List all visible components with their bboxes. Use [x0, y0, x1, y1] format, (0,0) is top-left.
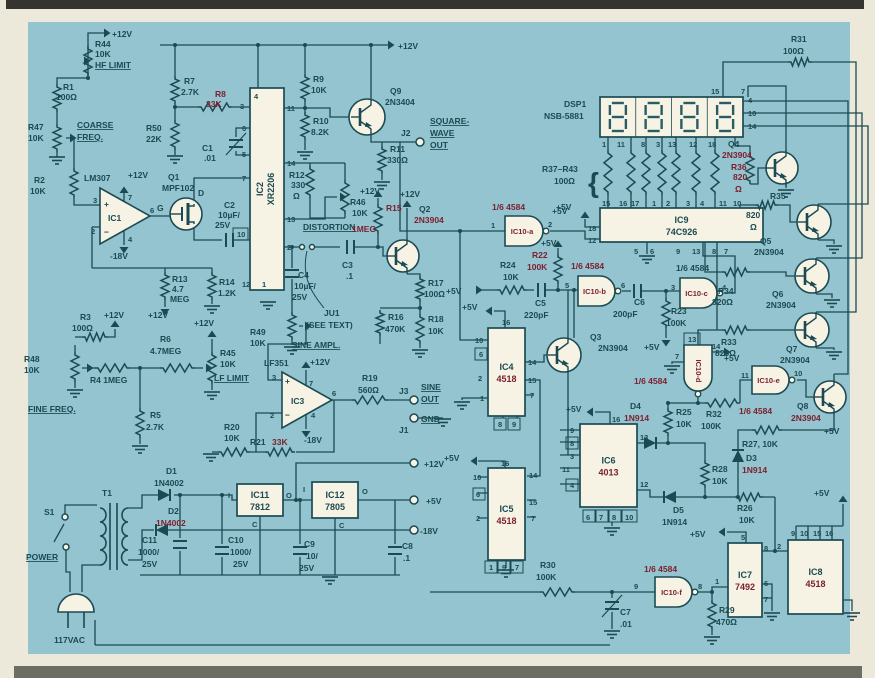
component-label: 6: [650, 247, 654, 256]
component-label: 820Ω: [712, 297, 733, 307]
component-label: R3: [80, 312, 91, 322]
junction-dot: [178, 493, 182, 497]
junction-dot: [138, 366, 142, 370]
ic-part-number: 4013: [598, 468, 618, 478]
junction-dot: [294, 498, 298, 502]
component-label: 10K: [352, 208, 368, 218]
component-label: 12: [242, 280, 250, 289]
component-label: R37–R43: [542, 164, 578, 174]
component-label: +5V: [644, 342, 660, 352]
component-label: 2: [666, 199, 670, 208]
component-label: 8: [612, 513, 616, 522]
ic-ref: IC11: [251, 490, 270, 500]
component-label: 100Ω: [554, 176, 575, 186]
component-label: 7: [599, 513, 603, 522]
component-label: 8.2K: [311, 127, 330, 137]
component-label: 100K: [536, 572, 557, 582]
component-label: R23: [671, 306, 687, 316]
component-label: 13: [692, 247, 700, 256]
component-label: C5: [535, 298, 546, 308]
component-label: 10K: [220, 359, 236, 369]
component-label: 9: [502, 563, 506, 572]
component-label: FINE FREQ.: [28, 404, 76, 414]
component-label: R26: [737, 503, 753, 513]
component-label: 1.2K: [218, 288, 237, 298]
component-label: DISTORTION: [303, 222, 355, 232]
component-label: WAVE: [430, 128, 455, 138]
component-label: +12V: [194, 318, 214, 328]
component-label: .01: [620, 619, 632, 629]
component-label: SINE: [421, 382, 441, 392]
component-label: POWER: [26, 552, 58, 562]
component-label: IC1: [108, 213, 122, 223]
component-label: R20: [224, 422, 240, 432]
component-label: 1MEG: [352, 224, 376, 234]
component-label: R45: [220, 348, 236, 358]
component-label: -18V: [110, 251, 128, 261]
component-label: Q3: [590, 332, 602, 342]
component-label: +12V: [128, 170, 148, 180]
component-label: C9: [304, 539, 315, 549]
component-label: D3: [746, 453, 757, 463]
component-label: 33K: [206, 99, 222, 109]
component-label: 11: [287, 104, 295, 113]
component-label: −: [104, 227, 109, 237]
component-label: R50: [146, 123, 162, 133]
component-label: R18: [428, 314, 444, 324]
junction-dot: [303, 43, 307, 47]
npn-transistor: [795, 258, 829, 294]
component-label: R35: [770, 191, 786, 201]
component-label: OUT: [421, 394, 440, 404]
component-label: R5: [150, 410, 161, 420]
component-label: 10µF/: [218, 210, 241, 220]
component-label: 15: [528, 376, 536, 385]
component-label: 3: [93, 196, 97, 205]
component-label: 330Ω: [387, 155, 408, 165]
npn-transistor: [795, 312, 829, 348]
component-label: D4: [630, 401, 641, 411]
junction-dot: [666, 441, 670, 445]
component-label: Ω: [750, 222, 757, 232]
component-label: Q1: [168, 172, 180, 182]
seven-segment-display: [600, 97, 743, 137]
component-label: C2: [224, 200, 235, 210]
component-label: R4 1MEG: [90, 375, 128, 385]
component-label: 820: [746, 210, 760, 220]
component-label: 3: [656, 140, 660, 149]
junction-dot: [556, 288, 560, 292]
component-label: R11: [390, 144, 405, 154]
component-label: 100Ω: [72, 323, 93, 333]
component-label: 7: [675, 352, 679, 361]
component-label: Q6: [772, 289, 784, 299]
component-label: +5V: [444, 453, 460, 463]
component-label: R9: [313, 74, 324, 84]
component-label: Q9: [390, 86, 402, 96]
component-label: 3: [671, 283, 675, 292]
component-label: 1/6 4584: [644, 564, 677, 574]
component-label: D: [198, 188, 204, 198]
junction-dot: [710, 590, 714, 594]
ic-part-number: 4518: [805, 579, 825, 589]
ic-ref: IC6: [601, 456, 615, 466]
component-label: 2: [287, 243, 291, 252]
scan-bottom-bar: [14, 666, 862, 678]
component-label: 1/6 4584: [676, 263, 709, 273]
component-label: O: [286, 491, 292, 500]
component-label: +5V: [690, 529, 706, 539]
component-label: 10: [473, 473, 481, 482]
component-label: +12V: [112, 29, 132, 39]
component-label: 7: [531, 514, 535, 523]
junction-dot: [696, 401, 700, 405]
component-label: +5V: [462, 302, 478, 312]
component-label: 1: [480, 394, 484, 403]
component-label: T1: [102, 488, 112, 498]
ic-part-number: 7492: [735, 582, 755, 592]
component-label: LF351: [264, 358, 289, 368]
gate-ref: IC10-f: [661, 588, 682, 597]
component-label: 100K: [701, 421, 722, 431]
component-label: 10: [733, 199, 741, 208]
component-label: 10K: [503, 272, 519, 282]
component-label: R24: [500, 260, 516, 270]
component-label: 2: [478, 374, 482, 383]
component-label: 1: [491, 221, 495, 230]
component-label: 2N3404: [385, 97, 415, 107]
component-label: 2N3904: [780, 355, 810, 365]
component-label: MEG: [170, 294, 190, 304]
component-label: 14: [528, 358, 537, 367]
junction-dot: [369, 43, 373, 47]
component-label: +5V: [552, 206, 568, 216]
component-label: 12: [640, 480, 648, 489]
ic-box: [312, 482, 358, 518]
component-label: 330: [291, 180, 305, 190]
component-label: -18V: [420, 526, 438, 536]
junction-dot: [666, 401, 670, 405]
schematic-canvas: IC2XR2206IC974C926IC117812IC127805IC4451…: [0, 0, 875, 678]
component-label: Q5: [760, 236, 772, 246]
component-label: 11: [741, 371, 749, 380]
component-label: 5: [242, 150, 246, 159]
component-label: +12V: [424, 459, 444, 469]
terminal-circle: [310, 245, 315, 250]
component-label: C7: [620, 607, 631, 617]
component-label: J3: [399, 386, 409, 396]
component-label: 18: [708, 140, 716, 149]
component-label: .1: [346, 271, 353, 281]
terminal-circle: [410, 396, 418, 404]
component-label: C: [252, 520, 258, 529]
junction-dot: [376, 245, 380, 249]
component-label: 5: [741, 533, 745, 542]
component-label: 1/6 4584: [492, 202, 525, 212]
component-label: 7: [309, 379, 313, 388]
component-label: 13: [688, 335, 696, 344]
component-label: R48: [24, 354, 40, 364]
component-label: 25V: [215, 220, 230, 230]
component-label: +5V: [541, 238, 557, 248]
component-label: FREQ.: [77, 132, 103, 142]
component-label: 1: [652, 199, 656, 208]
ic-part-number: 74C926: [666, 227, 698, 237]
gate-output-bubble: [543, 228, 549, 234]
component-label: 1N914: [662, 517, 687, 527]
scanned-schematic-page: IC2XR2206IC974C926IC117812IC127805IC4451…: [0, 0, 875, 678]
junction-dot: [458, 229, 462, 233]
component-label: 25V: [292, 292, 307, 302]
component-label: +12V: [148, 310, 168, 320]
component-label: 1N914: [742, 465, 767, 475]
component-label: R14: [219, 277, 235, 287]
terminal-circle: [416, 138, 424, 146]
jfet-symbol: [170, 198, 202, 230]
component-label: Q4: [728, 139, 740, 149]
component-label: SINE AMPL.: [292, 340, 340, 350]
ic-ref: IC12: [325, 490, 344, 500]
component-label: 12: [588, 236, 596, 245]
component-label: R34: [718, 286, 734, 296]
component-label: D5: [673, 505, 684, 515]
scan-top-bar: [6, 0, 864, 9]
component-label: 820Ω: [715, 348, 736, 358]
component-label: 10: [748, 109, 756, 118]
component-label: 470K: [385, 324, 406, 334]
ic-ref: IC5: [499, 504, 513, 514]
component-label: {: [588, 167, 599, 198]
junction-dot: [298, 498, 302, 502]
junction-dot: [572, 288, 576, 292]
component-label: +5V: [566, 404, 582, 414]
component-label: R21: [250, 437, 266, 447]
terminal-circle: [62, 514, 68, 520]
component-label: 560Ω: [358, 385, 379, 395]
component-label: (SEE TEXT): [306, 320, 353, 330]
component-label: 1000/: [138, 547, 160, 557]
component-label: 10: [800, 529, 808, 538]
component-label: LF LIMIT: [214, 373, 250, 383]
component-label: 10K: [28, 133, 44, 143]
ic-box: [788, 540, 843, 614]
component-label: Ω: [735, 184, 742, 194]
component-label: 10: [475, 336, 483, 345]
gate-output-bubble: [789, 377, 795, 383]
component-label: J1: [399, 425, 409, 435]
component-label: MPF102: [162, 183, 194, 193]
component-label: 6: [586, 513, 590, 522]
component-label: 1: [715, 577, 719, 586]
component-label: 14: [748, 122, 757, 131]
component-label: G: [157, 203, 164, 213]
npn-transistor: [797, 204, 831, 240]
component-label: 7: [741, 87, 745, 96]
component-label: 1/6 4584: [634, 376, 667, 386]
component-label: 18: [588, 224, 596, 233]
component-label: +12V: [398, 41, 418, 51]
component-label: 15: [602, 199, 610, 208]
component-label: R30: [540, 560, 556, 570]
component-label: O: [362, 487, 368, 496]
component-label: 220pF: [524, 310, 549, 320]
component-label: C1: [202, 143, 213, 153]
component-label: C11: [142, 535, 157, 545]
component-label: +12V: [400, 189, 420, 199]
component-label: 100K: [527, 262, 548, 272]
component-label: 3: [570, 452, 574, 461]
component-label: 25V: [299, 563, 314, 573]
component-label: 10K: [712, 476, 728, 486]
component-label: 25V: [233, 559, 248, 569]
component-label: 16: [825, 529, 833, 538]
component-label: I: [303, 485, 305, 494]
component-label: 13: [640, 433, 648, 442]
component-label: 6: [479, 350, 483, 359]
gate-output-bubble: [615, 288, 621, 294]
component-label: SQUARE-: [430, 116, 469, 126]
component-label: 9: [634, 582, 638, 591]
component-label: 9: [791, 529, 795, 538]
component-label: 15: [529, 498, 537, 507]
component-label: OUT: [430, 140, 449, 150]
component-label: +12V: [104, 310, 124, 320]
component-label: LM307: [84, 173, 111, 183]
component-label: 3: [686, 199, 690, 208]
component-label: R10: [313, 116, 329, 126]
component-label: +5V: [426, 496, 442, 506]
component-label: +: [104, 199, 109, 209]
component-label: 10: [625, 513, 633, 522]
component-label: R33: [721, 337, 737, 347]
ic-ref: IC7: [738, 570, 752, 580]
ic-part-number: 7812: [250, 502, 270, 512]
component-label: R49: [250, 327, 266, 337]
component-label: D1: [166, 466, 177, 476]
component-label: 820: [733, 172, 747, 182]
component-label: 100Ω: [56, 92, 77, 102]
component-label: JU1: [324, 308, 340, 318]
component-label: 7: [515, 563, 519, 572]
junction-dot: [173, 105, 177, 109]
component-label: C4: [298, 270, 309, 280]
component-label: 17: [631, 199, 639, 208]
component-label: GND: [421, 414, 440, 424]
component-label: 16: [501, 459, 509, 468]
component-label: R6: [160, 334, 171, 344]
ic-part-number: 4518: [496, 516, 516, 526]
component-label: R2: [34, 175, 45, 185]
component-label: 470Ω: [716, 617, 737, 627]
ic-part-number: 7805: [325, 502, 345, 512]
component-label: I: [228, 491, 230, 500]
component-label: 8: [712, 247, 716, 256]
component-label: .1: [403, 553, 410, 563]
component-label: 117VAC: [54, 635, 85, 645]
ic-ref: IC8: [808, 567, 822, 577]
terminal-circle: [410, 526, 418, 534]
component-label: 10K: [24, 365, 40, 375]
terminal-circle: [410, 414, 418, 422]
junction-dot: [736, 495, 740, 499]
component-label: R8: [215, 89, 226, 99]
component-label: 2: [270, 411, 274, 420]
ic-ref: IC2: [255, 182, 265, 196]
ic-part-number: XR2206: [266, 173, 276, 206]
terminal-circle: [410, 459, 418, 467]
component-label: 4.7: [172, 284, 184, 294]
junction-dot: [173, 43, 177, 47]
component-label: R47: [28, 122, 44, 132]
component-label: 2.7K: [146, 422, 165, 432]
component-label: −: [285, 410, 290, 420]
component-label: 6: [764, 579, 768, 588]
component-label: 14: [529, 471, 538, 480]
component-label: R22: [532, 250, 548, 260]
junction-dot: [664, 289, 668, 293]
component-label: IC3: [291, 396, 305, 406]
component-label: 5: [565, 281, 569, 290]
component-label: R19: [362, 373, 378, 383]
ic-ref: IC4: [499, 362, 513, 372]
component-label: 10/: [306, 551, 318, 561]
component-label: 3: [240, 102, 244, 111]
component-label: 2.7K: [181, 87, 200, 97]
component-label: 10K: [250, 338, 266, 348]
component-label: R12: [289, 170, 305, 180]
npn-transistor: [349, 99, 385, 135]
component-label: J2: [401, 128, 411, 138]
component-label: R17: [428, 278, 444, 288]
ic-part-number: 4518: [496, 374, 516, 384]
component-label: C3: [342, 260, 353, 270]
component-label: 12: [689, 140, 697, 149]
component-label: 2: [548, 220, 552, 229]
junction-dot: [220, 493, 224, 497]
component-label: +5V: [824, 426, 840, 436]
component-label: 6: [476, 490, 480, 499]
component-label: 13: [287, 215, 295, 224]
component-label: 6: [242, 124, 246, 133]
component-label: 10: [794, 369, 802, 378]
component-label: NSB-5881: [544, 111, 584, 121]
component-label: 16: [612, 415, 620, 424]
component-label: 1/6 4584: [739, 406, 772, 416]
component-label: R31: [791, 34, 807, 44]
component-label: R44: [95, 39, 111, 49]
component-label: 11: [719, 199, 727, 208]
component-label: 7: [530, 391, 534, 400]
component-label: 16: [502, 318, 510, 327]
component-label: R25: [676, 407, 692, 417]
component-label: 22K: [146, 134, 162, 144]
component-label: 7: [128, 193, 132, 202]
gate-output-bubble: [692, 589, 698, 595]
component-label: S1: [44, 507, 55, 517]
npn-transistor: [547, 337, 581, 373]
component-label: 1N914: [624, 413, 649, 423]
component-label: 13: [668, 140, 676, 149]
component-label: 14: [287, 159, 296, 168]
component-label: 5: [634, 247, 638, 256]
component-label: 4.7MEG: [150, 346, 182, 356]
component-label: 6: [621, 281, 625, 290]
component-label: 6: [332, 389, 336, 398]
component-label: R28: [712, 464, 728, 474]
component-label: 7: [764, 595, 768, 604]
gate-ref: IC10-c: [685, 289, 708, 298]
junction-dot: [303, 106, 307, 110]
